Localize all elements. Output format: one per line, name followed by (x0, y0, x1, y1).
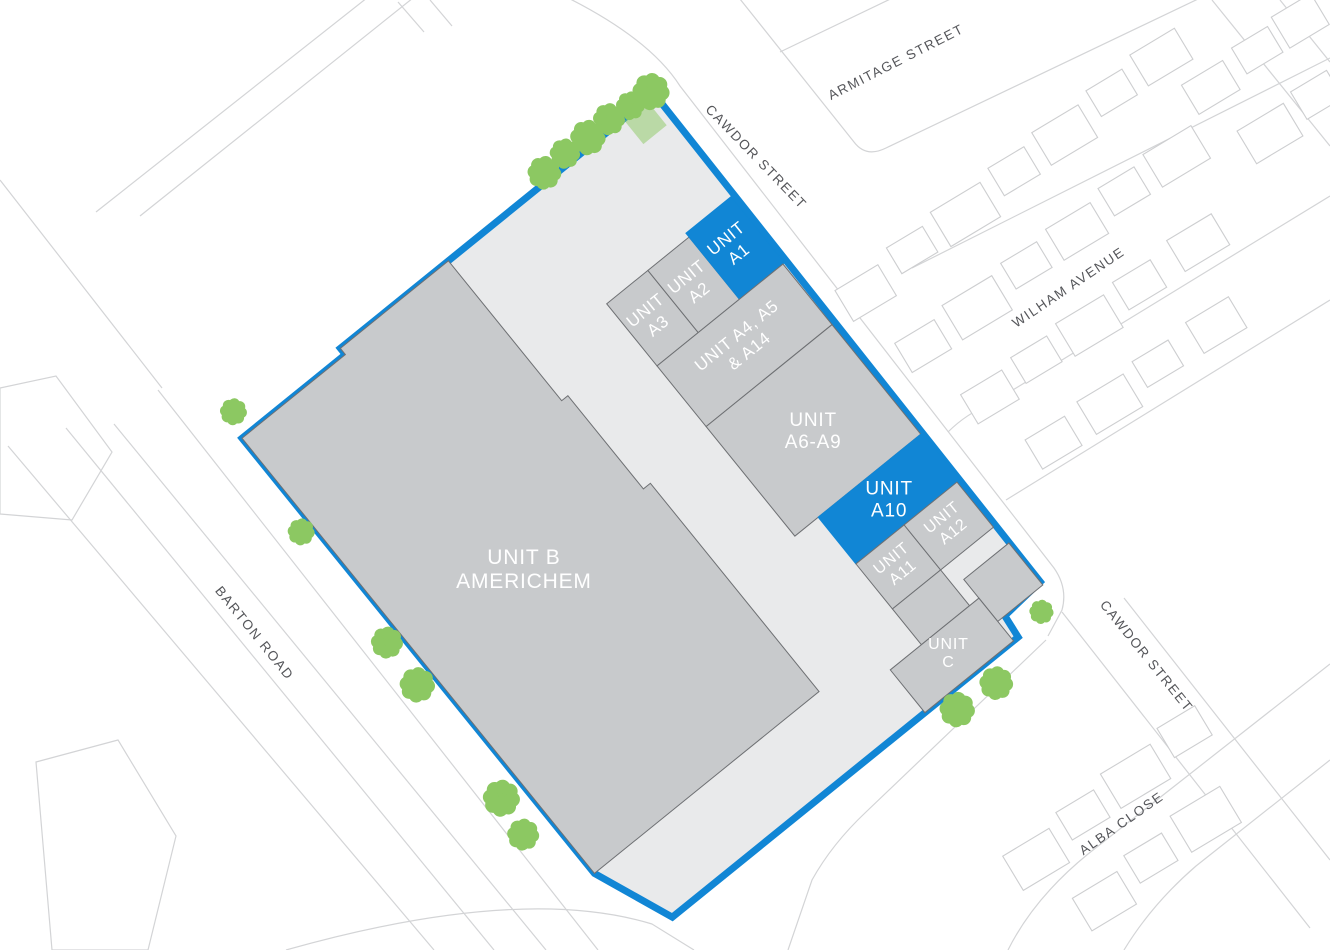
unit-a6-a9-label-line2: A6-A9 (785, 432, 842, 453)
house-outline (1181, 60, 1240, 114)
unit-a6-a9-label-line1: UNIT (789, 410, 837, 431)
house-outline (1170, 786, 1241, 852)
house-outline (1032, 105, 1098, 165)
street-line (140, 0, 556, 216)
house-outline (1291, 70, 1330, 119)
house-outline (1124, 833, 1178, 883)
house-outline (1186, 297, 1247, 354)
house-outline (1143, 126, 1211, 187)
street-line (0, 180, 162, 388)
unit-b-label-line1: UNIT B (487, 546, 560, 569)
house-outline (1132, 340, 1183, 387)
street-line (398, 2, 424, 32)
house-outline (1130, 28, 1193, 86)
street-label-armitage: ARMITAGE STREET (825, 21, 966, 103)
house-outline (1112, 260, 1166, 310)
house-outline (942, 276, 1012, 340)
parcel-outline (0, 376, 112, 520)
tree-icon (500, 812, 545, 857)
house-outline (1077, 374, 1143, 434)
unit-b-label-line2: AMERICHEM (456, 570, 592, 593)
house-outline (1003, 828, 1070, 890)
street-label-barton: BARTON ROAD (212, 583, 297, 683)
tree-icon (214, 393, 252, 431)
unit-c-label-line1: UNIT (928, 636, 969, 653)
parcel-outline (36, 740, 176, 950)
street-line (1008, 664, 1330, 950)
unit-a10-label-line1: UNIT (865, 478, 913, 499)
street-label-cawdor-right: CAWDOR STREET (1097, 598, 1196, 715)
house-outline (895, 320, 952, 373)
house-outline (886, 226, 937, 273)
house-outline (1046, 203, 1109, 261)
street-line (430, 0, 452, 26)
house-outline (1025, 416, 1082, 469)
house-outline (835, 265, 896, 322)
house-outline (1086, 69, 1137, 116)
unit-a10-label-line2: A10 (871, 500, 907, 521)
house-outline (988, 147, 1040, 196)
house-outline (1271, 0, 1329, 48)
street-line (286, 909, 694, 950)
tree-icon (1024, 595, 1058, 629)
street-line (1006, 300, 1330, 500)
house-outline (1072, 872, 1136, 931)
house-outline (1098, 167, 1150, 216)
house-outline (1001, 242, 1052, 289)
street-line (1062, 612, 1310, 928)
house-outline (1011, 336, 1062, 383)
site-plan-map: UNIT A3 UNIT A2 UNIT A1 UNIT A4, A5 & A1… (0, 0, 1330, 950)
house-outline (961, 370, 1020, 424)
house-outline (930, 182, 1000, 246)
house-outline (1056, 295, 1124, 356)
unit-c-label-line2: C (942, 654, 954, 671)
house-outline (1237, 103, 1303, 163)
